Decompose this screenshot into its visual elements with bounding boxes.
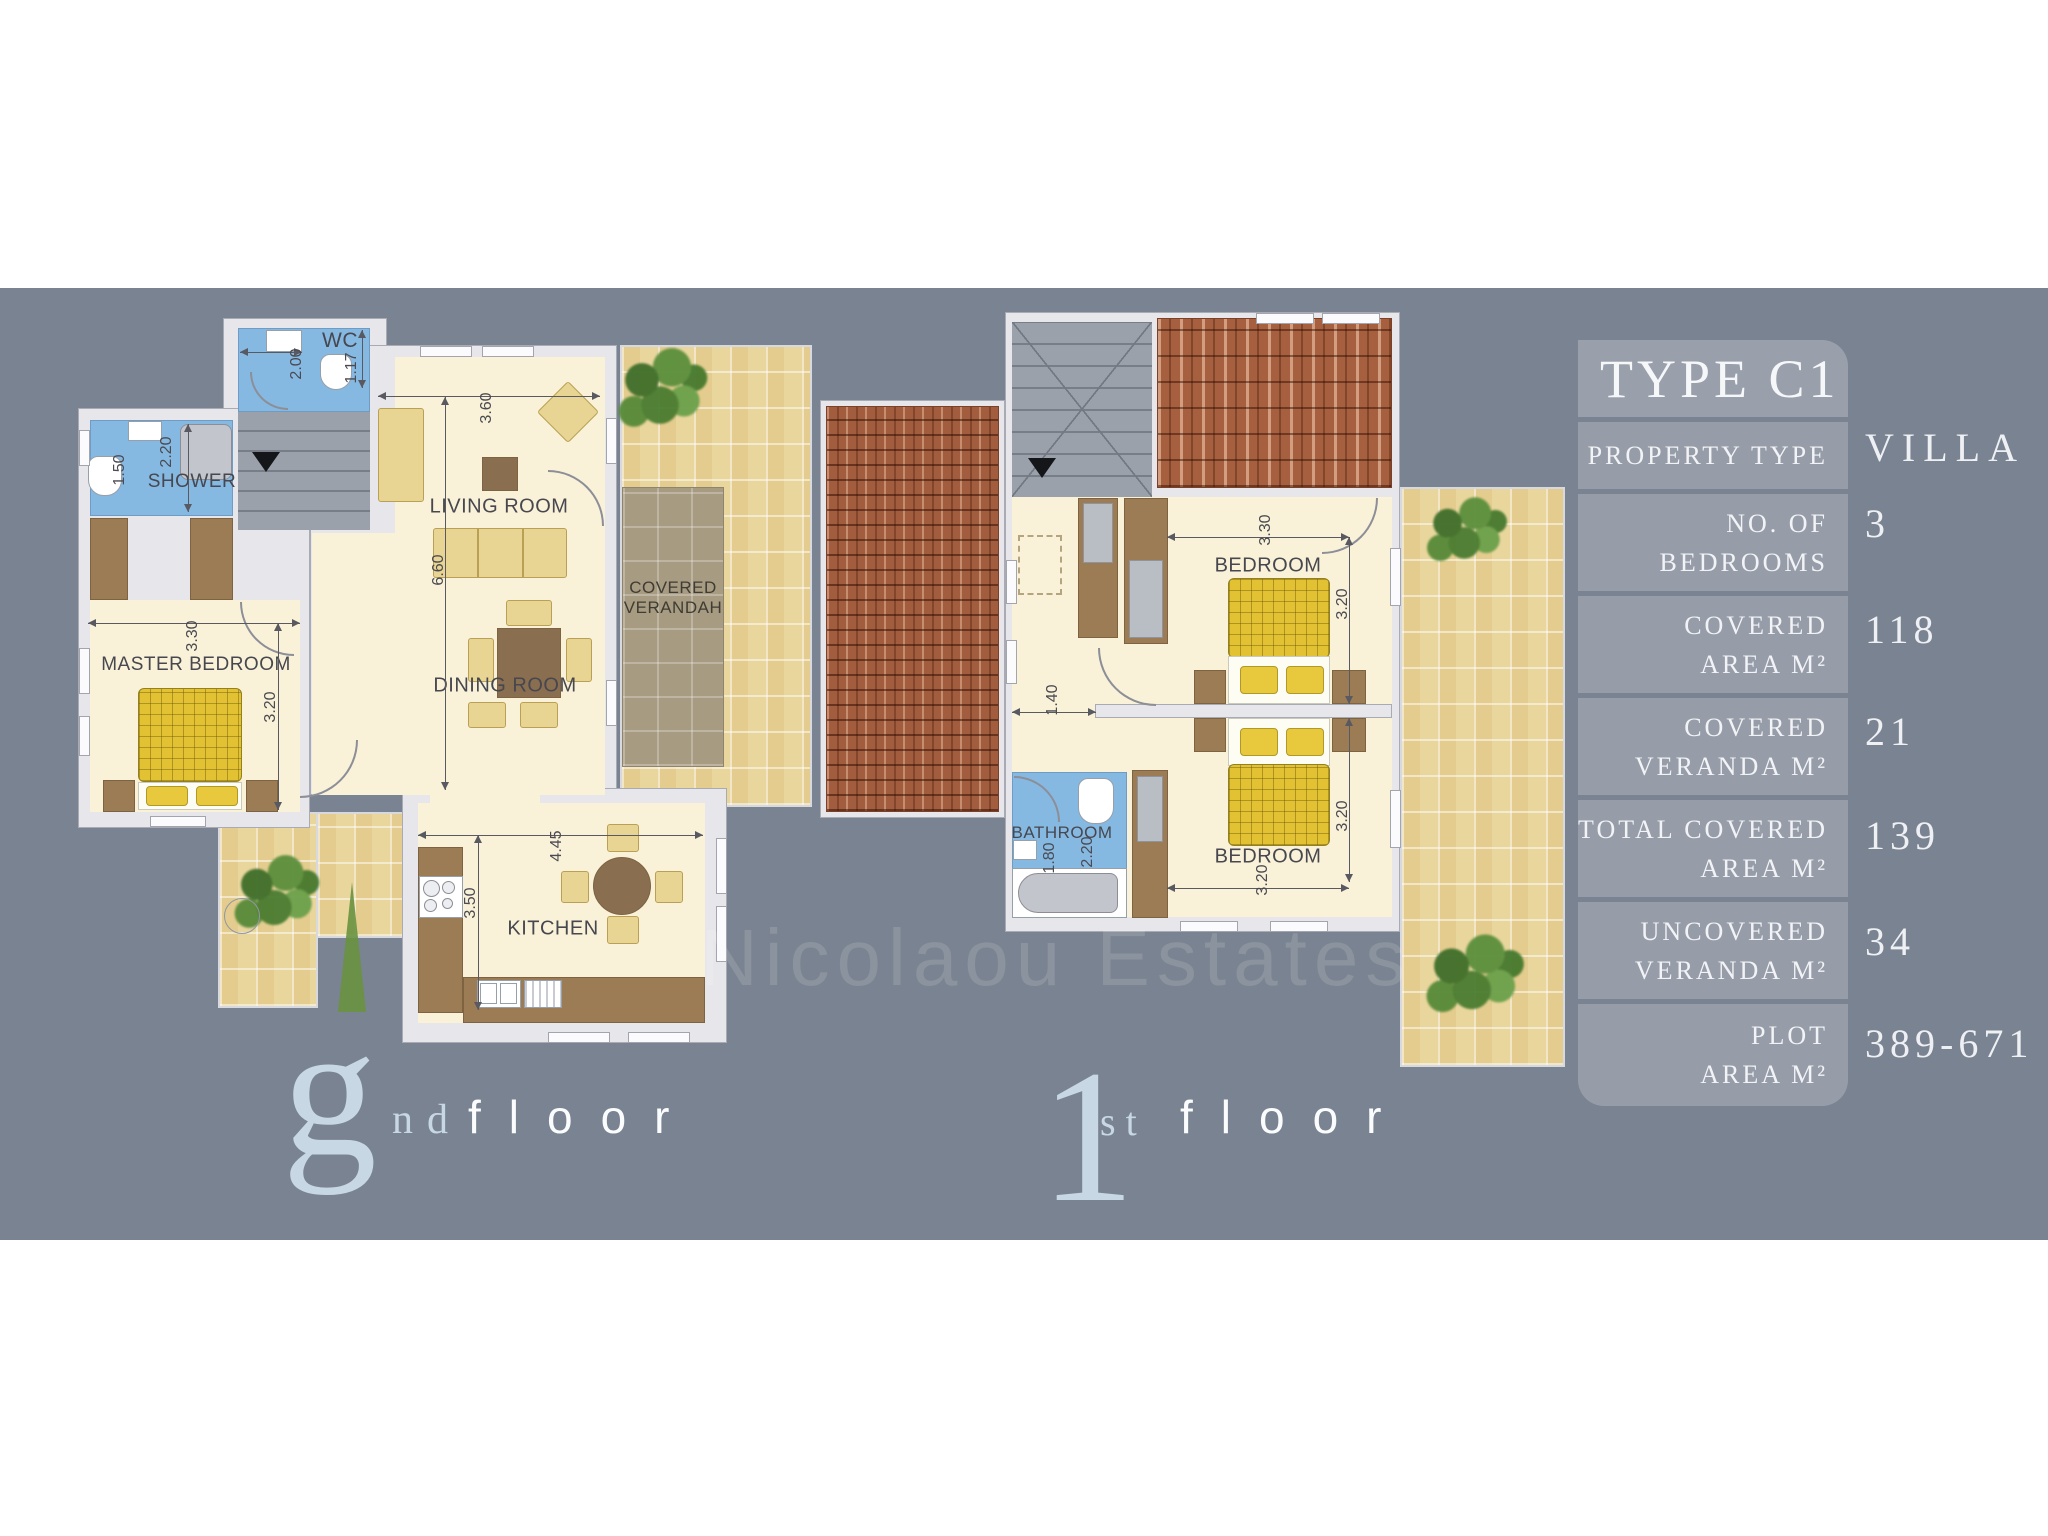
master-bed: [138, 688, 242, 782]
bathroom-sink: [1013, 840, 1037, 860]
nightstand: [1194, 718, 1226, 752]
room-label-bathroom: BATHROOM: [1012, 823, 1113, 843]
dim-shower-depth: 1.50: [111, 454, 129, 485]
window-marker: [1322, 313, 1380, 324]
window-marker: [482, 346, 534, 357]
closet-interior: [1137, 776, 1163, 842]
first-floor-word: floor: [1180, 1090, 1409, 1144]
pillow: [196, 786, 238, 806]
dining-chair: [506, 600, 552, 626]
window-marker: [79, 716, 90, 756]
side-table: [482, 457, 518, 491]
spec-value-property-type: VILLA: [1865, 424, 2025, 471]
bathtub: [1018, 873, 1118, 913]
spec-label-line: NO. OF: [1726, 504, 1828, 543]
kitchen-counter-left: [418, 847, 463, 1013]
spec-row-total-covered: TOTAL COVERED AREA M²: [1578, 800, 1848, 897]
burner: [442, 898, 453, 909]
window-marker: [1390, 790, 1401, 848]
room-label-wc: WC: [322, 329, 358, 353]
spec-value-covered-veranda: 21: [1865, 708, 1915, 755]
window-marker: [79, 430, 90, 466]
bathroom-toilet: [1078, 778, 1114, 824]
sink-basin: [480, 983, 497, 1004]
roof-tiles-wing: [826, 406, 999, 812]
window-marker: [150, 816, 206, 827]
spec-row-plot-area: PLOT AREA M²: [1578, 1004, 1848, 1106]
window-marker: [548, 1032, 610, 1043]
dim-wc-depth: 1.17: [343, 352, 361, 383]
spec-label-line: UNCOVERED: [1641, 912, 1828, 951]
spec-row-bedrooms: NO. OF BEDROOMS: [1578, 494, 1848, 591]
pillow: [1240, 666, 1278, 694]
spec-label-line: VERANDA M²: [1635, 951, 1828, 990]
dim-bathroom-depth: 2.20: [1079, 836, 1097, 867]
dim-bathroom-width: 1.80: [1041, 842, 1059, 873]
spec-label-line: AREA M²: [1700, 849, 1828, 888]
shower-sink: [128, 421, 162, 441]
dim-bedroom-bottom-depth: 3.20: [1334, 800, 1352, 831]
pillow: [1286, 728, 1324, 756]
wardrobe: [90, 518, 128, 600]
pillow: [1240, 728, 1278, 756]
dim-line: [478, 835, 479, 1010]
spec-label-line: COVERED: [1684, 708, 1828, 747]
pillow: [146, 786, 188, 806]
closet-interior: [1083, 503, 1113, 563]
window-marker: [1006, 640, 1017, 684]
dim-shower-width: 2.20: [158, 436, 176, 467]
spec-value-uncovered-veranda: 34: [1865, 918, 1915, 965]
dim-master-width: 3.30: [184, 620, 202, 651]
spec-label-line: COVERED: [1684, 606, 1828, 645]
bed-bottom-blanket: [1228, 764, 1330, 846]
room-label-verandah-2: VERANDAH: [624, 598, 722, 618]
ground-floor-word: floor: [468, 1090, 697, 1144]
window-marker: [628, 1032, 690, 1043]
dim-kitchen-width: 4.45: [548, 830, 566, 861]
kitchen-chair: [607, 916, 639, 944]
dim-living-width: 3.60: [478, 392, 496, 423]
sofa-vertical: [378, 408, 424, 502]
watermark: Nicolaou Estates: [700, 912, 1412, 1004]
window-marker: [606, 418, 617, 464]
dim-kitchen-depth: 3.50: [462, 887, 480, 918]
ground-floor-ordinal: nd: [392, 1096, 462, 1144]
closet-interior: [1129, 560, 1163, 638]
dining-chair: [468, 702, 506, 728]
kitchen-chair: [561, 871, 589, 903]
dim-bedroom-bottom-width: 3.20: [1254, 864, 1272, 895]
spec-row-property-type: PROPERTY TYPE: [1578, 422, 1848, 489]
dim-bedroom-top-depth: 3.20: [1334, 588, 1352, 619]
spec-row-covered-veranda: COVERED VERANDA M²: [1578, 698, 1848, 795]
burner: [424, 899, 437, 912]
dim-line: [445, 397, 446, 790]
bedroom-divider-wall: [1095, 704, 1392, 718]
sink-basin: [500, 983, 517, 1004]
spec-row-uncovered-veranda: UNCOVERED VERANDA M²: [1578, 902, 1848, 999]
stairs-arrow: [252, 452, 280, 472]
window-marker: [606, 680, 617, 726]
kitchen-chair: [655, 871, 683, 903]
spec-value-total-covered: 139: [1865, 812, 1940, 859]
burner: [442, 881, 455, 894]
nightstand: [246, 780, 278, 812]
burner: [423, 880, 440, 897]
spec-value-bedrooms: 3: [1865, 500, 1890, 547]
window-marker: [420, 346, 472, 357]
room-label-verandah-1: COVERED: [629, 578, 717, 598]
window-marker: [1256, 313, 1314, 324]
room-label-master-bedroom: MASTER BEDROOM: [101, 654, 291, 676]
skylight-dashed: [1018, 535, 1062, 595]
covered-verandah-area: [622, 487, 724, 767]
stone-circle: [224, 898, 260, 934]
room-label-dining-room: DINING ROOM: [433, 675, 576, 698]
stairs-arrow: [1028, 458, 1056, 478]
dim-line: [362, 330, 363, 388]
drain-board: [524, 980, 562, 1008]
dim-bedroom-top-width: 3.30: [1257, 514, 1275, 545]
spec-label-line: PLOT: [1751, 1016, 1828, 1055]
ground-floor-initial: g: [282, 996, 377, 1186]
plant-veranda-bottom: [1418, 928, 1530, 1028]
window-marker: [1390, 548, 1401, 606]
spec-value-plot-area: 389-671: [1865, 1020, 2033, 1067]
floorplan-sheet: { "panel": { "title": "TYPE C1", "rows":…: [0, 0, 2048, 1536]
nightstand: [1194, 670, 1226, 704]
window-marker: [79, 648, 90, 694]
dim-hall-width: 1.40: [1044, 684, 1062, 715]
spec-label-line: VERANDA M²: [1635, 747, 1828, 786]
spec-panel-title: TYPE C1: [1578, 340, 1848, 417]
spec-label-line: BEDROOMS: [1660, 543, 1828, 582]
spec-row-covered-area: COVERED AREA M²: [1578, 596, 1848, 693]
kitchen-chair: [607, 824, 639, 852]
dim-line: [188, 424, 189, 512]
spec-label-line: TOTAL COVERED: [1578, 810, 1828, 849]
wardrobe: [190, 518, 233, 600]
dining-chair: [520, 702, 558, 728]
room-label-shower: SHOWER: [148, 471, 237, 493]
bed-top-blanket: [1228, 578, 1330, 658]
first-floor-ordinal: st: [1100, 1098, 1147, 1145]
nightstand: [103, 780, 135, 812]
window-marker: [1006, 560, 1017, 604]
room-label-bedroom-top: BEDROOM: [1215, 555, 1322, 578]
room-label-living-room: LIVING ROOM: [430, 496, 569, 519]
roof-tiles-top: [1157, 318, 1392, 488]
spec-value-covered-area: 118: [1865, 606, 1939, 653]
room-label-kitchen: KITCHEN: [507, 918, 598, 941]
dim-master-depth: 3.20: [262, 691, 280, 722]
pillow: [1286, 666, 1324, 694]
plant-top-right: [612, 340, 712, 445]
kitchen-table: [593, 857, 651, 915]
window-marker: [716, 838, 727, 894]
spec-label-line: AREA M²: [1700, 645, 1828, 684]
dim-living-depth: 6.60: [430, 554, 448, 585]
spec-label-line: AREA M²: [1700, 1055, 1828, 1094]
dim-line: [1349, 537, 1350, 704]
plant-veranda-top: [1420, 492, 1512, 574]
sofa-long: [433, 528, 567, 578]
spec-label-line: PROPERTY TYPE: [1588, 436, 1828, 475]
dim-wc-width: 2.00: [288, 348, 306, 379]
